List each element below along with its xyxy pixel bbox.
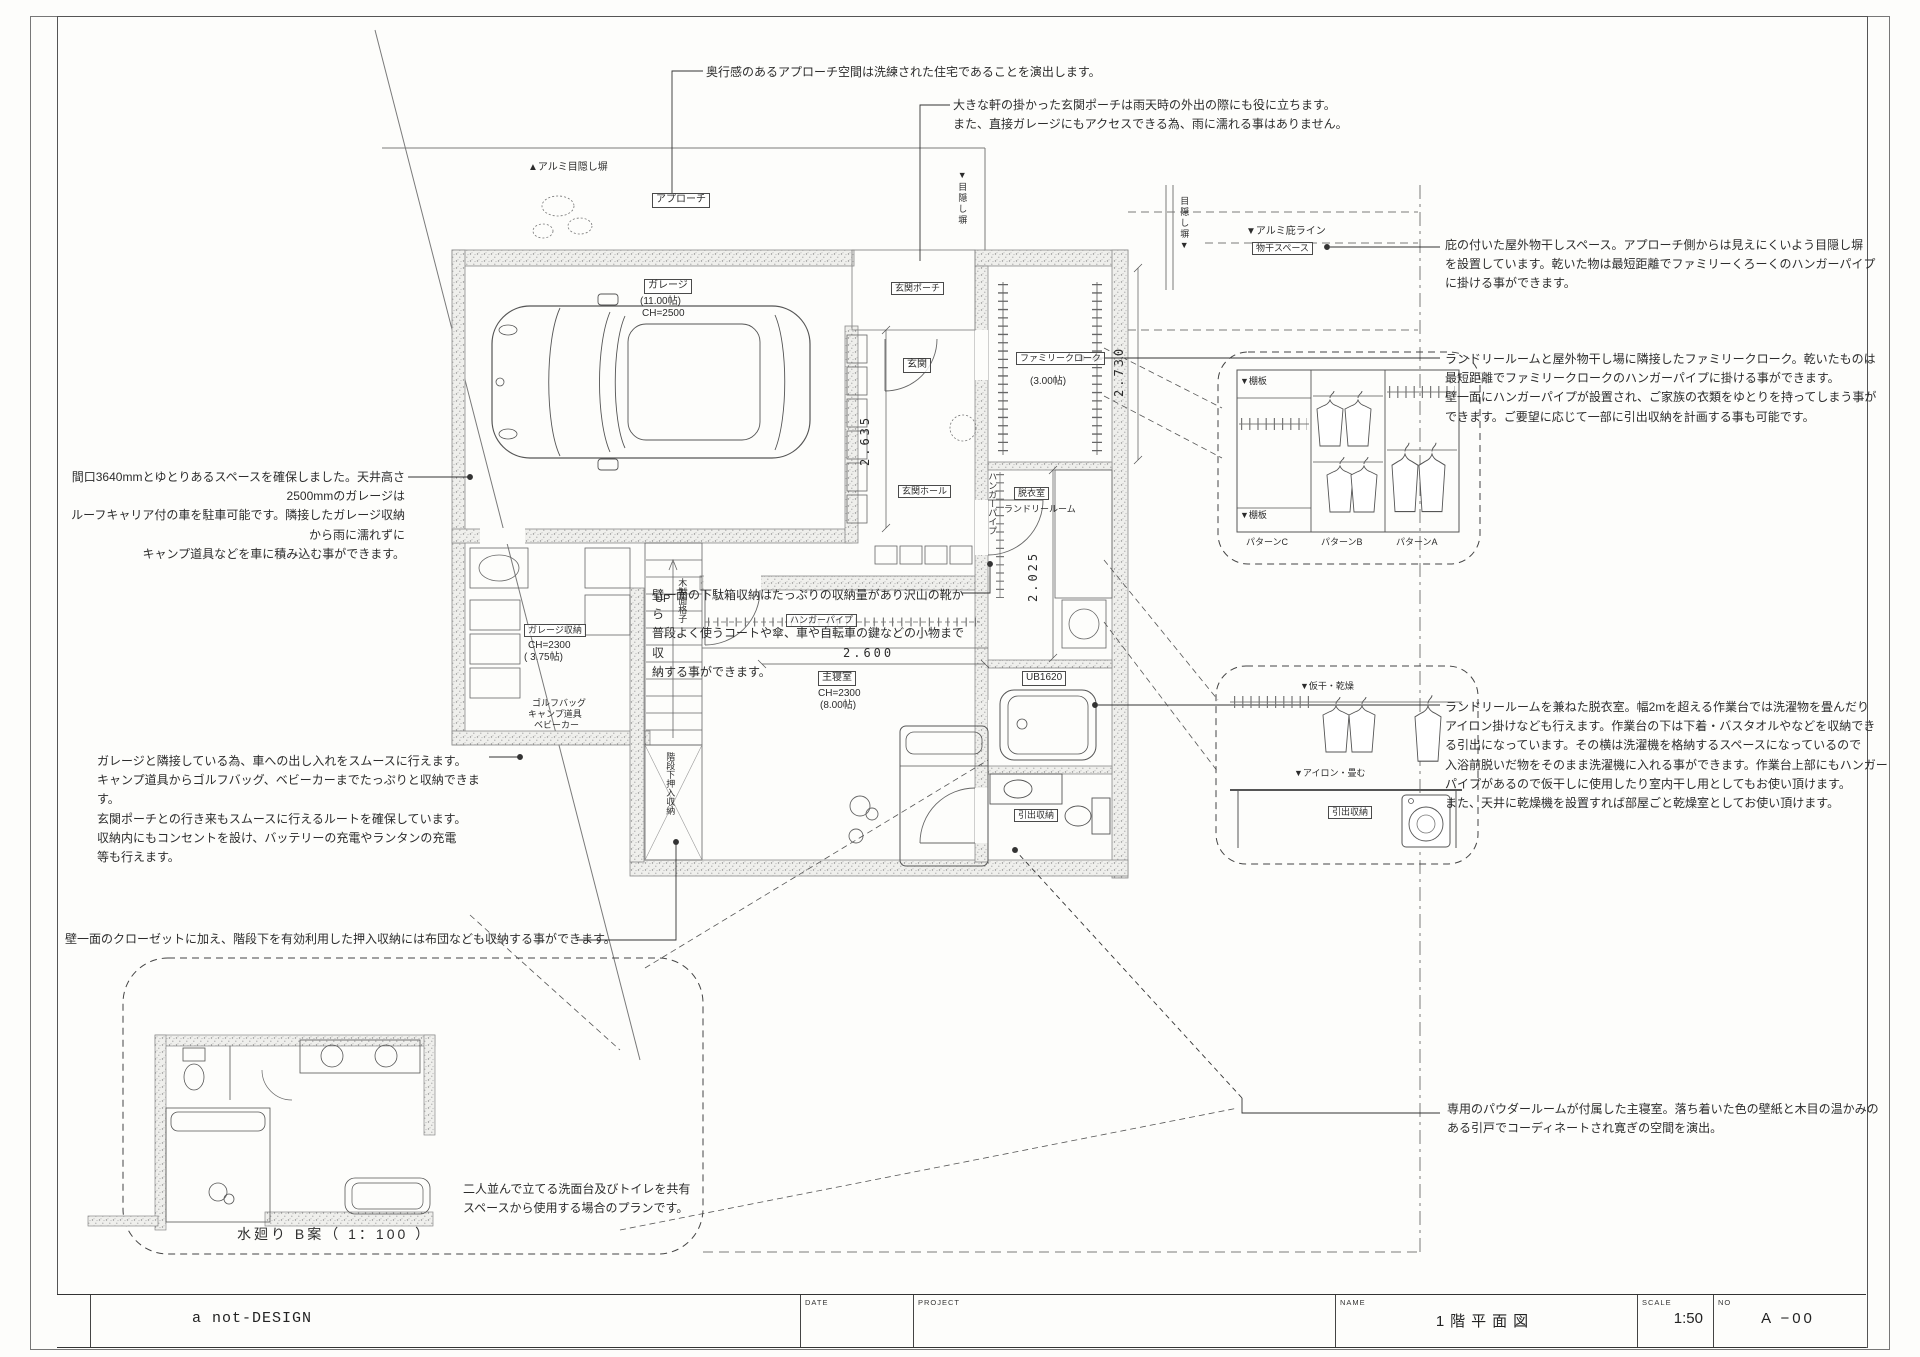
label-pattern-b: パターンB	[1321, 537, 1363, 548]
note-garage: 間口3640mmとゆとりあるスペースを確保しました。天井高さ2500mmのガレー…	[62, 468, 405, 564]
label-garage-storage: ガレージ収納	[524, 624, 586, 637]
dim-2600: 2.600	[843, 646, 894, 660]
dim-2025: 2.025	[1026, 551, 1040, 602]
label-bedroom-size: (8.00帖)	[820, 700, 856, 713]
note-porch: 大きな軒の掛かった玄関ポーチは雨天時の外出の際にも役に立ちます。 また、直接ガレ…	[953, 96, 1453, 134]
label-bedroom-ch: CH=2300	[818, 688, 861, 701]
note-drying-space: 庇の付いた屋外物干しスペース。アプローチ側からは見えにくいよう目隠し塀 を設置し…	[1445, 236, 1890, 294]
date-label: DATE	[805, 1298, 828, 1307]
cloak-hanger-pipes	[1003, 282, 1097, 455]
inset-caption: 水廻り B案（ 1：100 ）	[237, 1224, 432, 1244]
label-drawer-storage-detail: 引出収納	[1328, 806, 1372, 819]
project-label: PROJECT	[918, 1298, 960, 1307]
note-family-cloak: ランドリールームと屋外物干し場に隣接したファミリークローク。乾いたものは 最短距…	[1445, 350, 1890, 427]
label-family-cloak-size: (3.00帖)	[1030, 376, 1066, 389]
label-mekakushi-right: ▼目隠し塀	[956, 170, 967, 226]
inset-note: 二人並んで立てる洗面台及びトイレを共有 スペースから使用する場合のプランです。	[463, 1180, 693, 1218]
label-hanger-pipe-bedroom: ハンガーパイプ	[786, 614, 857, 627]
label-approach: アプローチ	[652, 193, 710, 208]
scale-label: SCALE	[1642, 1298, 1672, 1307]
no-label: NO	[1718, 1298, 1731, 1307]
drawing-sheet: 奥行感のあるアプローチ空間は洗練された住宅であることを演出します。 大きな軒の掛…	[0, 0, 1920, 1357]
plants	[533, 196, 976, 441]
label-pattern-a: パターンA	[1396, 537, 1438, 548]
label-up: UP	[655, 593, 670, 607]
company-name: a not-DESIGN	[192, 1310, 312, 1327]
label-golf-bag: ゴルフバッグ	[532, 698, 586, 709]
label-shelf-bottom: ▼棚板	[1240, 510, 1267, 521]
toilet-bowl	[1065, 806, 1091, 826]
drawing-number: A −00	[1713, 1310, 1863, 1327]
laundry-detail-bubble	[1216, 666, 1478, 864]
label-drawer-storage: 引出収納	[1014, 809, 1058, 822]
title-block: a not-DESIGN DATE PROJECT NAME SCALE NO …	[57, 1294, 1866, 1348]
drawing-name: 1階平面図	[1335, 1310, 1635, 1331]
name-label: NAME	[1340, 1298, 1366, 1307]
label-monohoshi-space: 物干スペース	[1252, 242, 1313, 255]
label-datsuishitsu: 脱衣室	[1014, 487, 1049, 500]
label-porch: 玄関ポーチ	[891, 282, 944, 295]
label-alumi-hisashi: ▼アルミ庇ライン	[1246, 226, 1326, 239]
label-garage-ch: CH=2500	[642, 308, 685, 321]
inset-bed	[166, 1108, 270, 1222]
label-pattern-c: パターンC	[1246, 537, 1288, 548]
bathtub	[1000, 690, 1096, 760]
label-stairs-storage: 階段下押入収納	[664, 752, 675, 815]
note-closet: 壁一面のクローゼットに加え、階段下を有効利用した押入収納には布団なども収納する事…	[65, 930, 685, 949]
label-kariboshi: ▼仮干・乾燥	[1300, 681, 1354, 692]
inset-toilet-tank	[183, 1048, 205, 1061]
label-baby-car: ベビーカー	[534, 720, 579, 731]
label-hanger-pipe-laundry: ハンガーパイプ	[986, 472, 997, 535]
toilet-tank	[1092, 798, 1110, 834]
vanity-counter	[990, 774, 1062, 804]
note-garage-storage: ガレージと隣接している為、車への出し入れをスムースに行えます。 キャンプ道具から…	[97, 752, 492, 867]
inset-toilet-bowl	[184, 1064, 204, 1090]
drawing-scale: 1:50	[1637, 1310, 1703, 1327]
door-arcs	[262, 339, 1043, 1100]
label-alumi-fence: ▲アルミ目隠し塀	[528, 162, 608, 175]
note-approach: 奥行感のあるアプローチ空間は洗練された住宅であることを演出します。	[706, 63, 1246, 82]
powder-room-fittings	[990, 774, 1110, 834]
label-garage-storage-size: ( 3.75帖)	[524, 652, 563, 665]
dim-2635: 2.635	[858, 415, 872, 466]
label-garage-size: (11.00帖)	[640, 296, 681, 309]
label-iron: ▼アイロン・畳む	[1294, 768, 1365, 779]
dim-2730: 2.730	[1112, 346, 1126, 397]
label-bedroom: 主寝室	[818, 671, 856, 686]
label-genkan-hall: 玄関ホール	[898, 485, 951, 498]
label-ub: UB1620	[1022, 671, 1066, 686]
wash-basin	[1004, 780, 1032, 798]
label-shelf-top: ▼棚板	[1240, 376, 1267, 387]
label-mekakushi-far-right: 目隠し塀▼	[1178, 196, 1189, 252]
washing-machine-icon	[1402, 795, 1450, 847]
label-camp-gear: キャンプ道具	[528, 709, 582, 720]
label-genkan: 玄関	[903, 358, 931, 373]
note-laundry: ランドリールームを兼ねた脱衣室。幅2mを超える作業台では洗濯物を畳んだり アイロ…	[1445, 698, 1893, 813]
label-wood-lattice: 木製面格子	[676, 578, 687, 623]
label-garage-storage-ch: CH=2300	[528, 640, 571, 653]
garage-storage-fittings	[470, 548, 630, 698]
label-family-cloak: ファミリークローク	[1016, 352, 1105, 365]
note-bedroom: 専用のパウダールームが付属した主寝室。落ち着いた色の壁紙と木目の温かみの ある引…	[1447, 1100, 1892, 1138]
label-laundry-room: ランドリールーム	[1004, 504, 1076, 515]
note-shoe-storage: 壁一面の下駄箱収納はたっぷりの収納量があり沢山の靴から 普段よく使うコートや傘、…	[652, 586, 972, 682]
label-garage: ガレージ	[644, 279, 692, 294]
